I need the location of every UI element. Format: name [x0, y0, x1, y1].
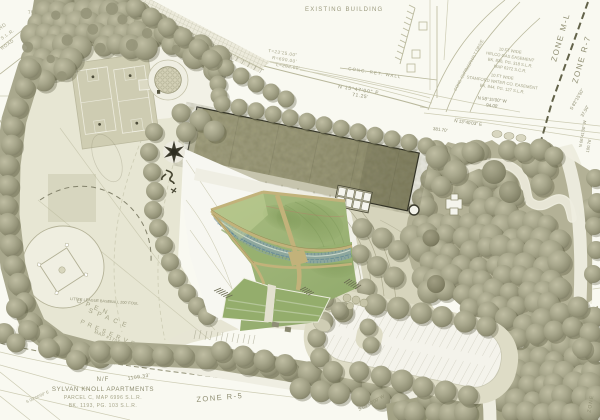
svg-text:SYLVAN KNOLL APARTMENTS: SYLVAN KNOLL APARTMENTS [52, 386, 154, 393]
svg-text:EXISTING BUILDING: EXISTING BUILDING [305, 7, 383, 13]
svg-text:BK. 1193, PG. 103 S.L.R.: BK. 1193, PG. 103 S.L.R. [69, 403, 138, 409]
svg-text:N/F: N/F [97, 377, 110, 383]
svg-text:PARCEL C, MAP 6996 S.L.R.: PARCEL C, MAP 6996 S.L.R. [64, 395, 142, 401]
